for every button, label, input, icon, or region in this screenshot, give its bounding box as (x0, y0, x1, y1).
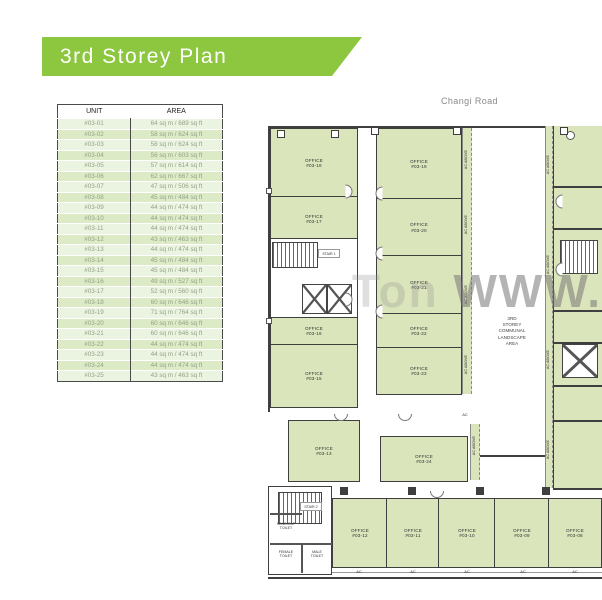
door-arc (430, 491, 444, 498)
unit-cell: #03-17 (58, 287, 131, 298)
room-03-08: OFFICE #03-08 (548, 498, 602, 568)
room-03-19: OFFICE #03-19 (376, 128, 462, 200)
table-row: #03-1752 sq m / 560 sq ft (58, 287, 223, 298)
area-cell: 43 sq m / 463 sq ft (131, 371, 223, 382)
lift-shaft (302, 284, 327, 314)
unit-cell: #03-22 (58, 339, 131, 350)
wall-r1 (553, 186, 602, 188)
area-cell: 60 sq m / 646 sq ft (131, 297, 223, 308)
area-cell: 64 sq m / 689 sq ft (131, 119, 223, 130)
area-cell: 43 sq m / 463 sq ft (131, 234, 223, 245)
corridor-column (408, 487, 416, 495)
area-cell: 60 sq m / 646 sq ft (131, 329, 223, 340)
unit-cell: #03-05 (58, 161, 131, 172)
unit-cell: #03-06 (58, 171, 131, 182)
unit-cell: #03-08 (58, 192, 131, 203)
area-cell: 44 sq m / 474 sq ft (131, 350, 223, 361)
area-cell: 52 sq m / 560 sq ft (131, 287, 223, 298)
communal-area-label: 3RD STOREY COMMUNAL LANDSCAPE AREA (478, 316, 546, 347)
unit-cell: #03-14 (58, 255, 131, 266)
table-row: #03-1971 sq m / 764 sq ft (58, 308, 223, 319)
area-cell: 45 sq m / 484 sq ft (131, 266, 223, 277)
ac-above-label: AC ABOVE (546, 350, 552, 369)
wall-ledge (266, 188, 272, 194)
table-row: #03-1545 sq m / 484 sq ft (58, 266, 223, 277)
room-unit-label: #03-11 (405, 533, 420, 538)
unit-cell: #03-18 (58, 297, 131, 308)
lift-shaft-right (562, 344, 598, 378)
area-cell: 45 sq m / 484 sq ft (131, 255, 223, 266)
room-unit-label: #03-16 (306, 331, 322, 336)
unit-cell: #03-01 (58, 119, 131, 130)
door-arc (556, 263, 563, 277)
table-row: #03-2344 sq m / 474 sq ft (58, 350, 223, 361)
unit-cell: #03-02 (58, 129, 131, 140)
elevator-x-icon (303, 285, 326, 313)
door-arc (376, 187, 383, 201)
table-row: #03-1243 sq m / 463 sq ft (58, 234, 223, 245)
room-unit-label: #03-19 (411, 164, 427, 169)
corridor-column (476, 487, 484, 495)
unit-cell: #03-07 (58, 182, 131, 193)
door-arc (556, 195, 563, 209)
table-row: #03-1144 sq m / 474 sq ft (58, 224, 223, 235)
column-square (371, 127, 379, 135)
table-header-unit: UNIT (58, 105, 131, 119)
corridor-column (340, 487, 348, 495)
unit-cell: #03-10 (58, 213, 131, 224)
unit-cell: #03-12 (58, 234, 131, 245)
column-square (277, 130, 285, 138)
unit-cell: #03-04 (58, 150, 131, 161)
table-row: #03-0358 sq m / 624 sq ft (58, 140, 223, 151)
table-row: #03-2543 sq m / 463 sq ft (58, 371, 223, 382)
room-03-15: OFFICE #03-15 (270, 344, 358, 408)
column-square (560, 127, 568, 135)
table-row: #03-2444 sq m / 474 sq ft (58, 360, 223, 371)
ac-above-label: AC ABOVE (464, 150, 470, 169)
right-units-block (553, 126, 602, 490)
door-arc (376, 305, 383, 319)
table-header-area: AREA (131, 105, 223, 119)
room-unit-label: #03-09 (514, 533, 530, 538)
room-03-21: OFFICE #03-21 (376, 255, 462, 315)
corridor-column (542, 487, 550, 495)
elevator-x-icon (563, 345, 597, 377)
room-03-13: OFFICE #03-13 (288, 420, 360, 482)
ac-label: AC (406, 569, 420, 574)
unit-cell: #03-09 (58, 203, 131, 214)
room-unit-label: #03-21 (411, 285, 427, 290)
room-03-23: OFFICE #03-23 (376, 347, 462, 395)
ac-label: AC (458, 412, 472, 417)
unit-cell: #03-16 (58, 276, 131, 287)
unit-cell: #03-24 (58, 360, 131, 371)
unit-cell: #03-21 (58, 329, 131, 340)
room-03-16: OFFICE #03-16 (270, 316, 358, 346)
area-cell: 44 sq m / 474 sq ft (131, 339, 223, 350)
wall-r5 (553, 385, 602, 387)
room-unit-label: #03-22 (411, 331, 427, 336)
area-cell: 58 sq m / 624 sq ft (131, 140, 223, 151)
area-cell: 47 sq m / 506 sq ft (131, 182, 223, 193)
room-unit-label: #03-24 (416, 459, 432, 464)
table-row: #03-0747 sq m / 506 sq ft (58, 182, 223, 193)
unit-cell: #03-13 (58, 245, 131, 256)
table-row: #03-2060 sq m / 646 sq ft (58, 318, 223, 329)
unit-area-table: UNIT AREA #03-0164 sq m / 689 sq ft #03-… (57, 104, 223, 382)
area-cell: 71 sq m / 764 sq ft (131, 308, 223, 319)
column-square (453, 127, 461, 135)
wall-ledge (266, 318, 272, 324)
wall-r7 (553, 488, 602, 490)
stair-1 (272, 242, 318, 268)
area-cell: 56 sq m / 603 sq ft (131, 150, 223, 161)
unit-cell: #03-20 (58, 318, 131, 329)
room-03-22: OFFICE #03-22 (376, 313, 462, 349)
area-cell: 60 sq m / 646 sq ft (131, 318, 223, 329)
area-cell: 45 sq m / 484 sq ft (131, 192, 223, 203)
table-row: #03-2244 sq m / 474 sq ft (58, 339, 223, 350)
door-arc (398, 414, 412, 421)
area-cell: 44 sq m / 474 sq ft (131, 360, 223, 371)
page-title: 3rd Storey Plan (60, 45, 227, 69)
room-unit-label: #03-10 (459, 533, 475, 538)
unit-cell: #03-25 (58, 371, 131, 382)
ac-above-label: AC ABOVE (464, 355, 470, 374)
wall-bottom (268, 577, 602, 579)
ac-above-label: AC ABOVE (464, 285, 470, 304)
room-unit-label: #03-12 (352, 533, 368, 538)
page: 3rd Storey Plan UNIT AREA #03-0164 sq m … (0, 0, 602, 600)
room-unit-label: #03-13 (316, 451, 332, 456)
table-row: #03-0164 sq m / 689 sq ft (58, 119, 223, 130)
changi-road-label: Changi Road (441, 96, 498, 106)
unit-cell: #03-23 (58, 350, 131, 361)
table-row: #03-1860 sq m / 646 sq ft (58, 297, 223, 308)
room-03-20: OFFICE #03-20 (376, 198, 462, 257)
toilet-male-label: MALE TOILET (303, 550, 331, 559)
toilet-wall-1 (270, 513, 302, 515)
stair-1-label: STAIR 1 (318, 249, 340, 258)
table-row: #03-1445 sq m / 484 sq ft (58, 255, 223, 266)
wall-r2 (553, 228, 602, 230)
room-unit-label: #03-23 (411, 371, 427, 376)
unit-cell: #03-19 (58, 308, 131, 319)
stair-2-label: STAIR 2 (300, 502, 322, 511)
table-header-row: UNIT AREA (58, 105, 223, 119)
table-row: #03-0944 sq m / 474 sq ft (58, 203, 223, 214)
unit-cell: #03-11 (58, 224, 131, 235)
ac-label: AC (568, 569, 582, 574)
room-03-12: OFFICE #03-12 (332, 498, 388, 568)
area-cell: 44 sq m / 474 sq ft (131, 245, 223, 256)
ac-above-strip (545, 126, 553, 488)
table-row: #03-1044 sq m / 474 sq ft (58, 213, 223, 224)
door-arc (376, 247, 383, 261)
ac-label: AC (516, 569, 530, 574)
wall-r3 (553, 310, 602, 312)
title-banner: 3rd Storey Plan (42, 37, 362, 76)
room-03-24: OFFICE #03-24 (380, 436, 468, 482)
toilet-handicap-label: HANDICAP TOILET (271, 522, 301, 531)
ac-above-label: AC ABOVE (546, 155, 552, 174)
table-row: #03-1649 sq m / 527 sq ft (58, 276, 223, 287)
unit-cell: #03-15 (58, 266, 131, 277)
room-unit-label: #03-08 (567, 533, 583, 538)
ac-above-label: AC ABOVE (546, 440, 552, 459)
room-03-17: OFFICE #03-17 (270, 196, 358, 242)
area-cell: 44 sq m / 474 sq ft (131, 213, 223, 224)
room-03-09: OFFICE #03-09 (494, 498, 550, 568)
area-cell: 62 sq m / 667 sq ft (131, 171, 223, 182)
wall-communal-bottom (470, 455, 553, 457)
area-cell: 57 sq m / 614 sq ft (131, 161, 223, 172)
stair-right (560, 240, 598, 274)
table-row: #03-0662 sq m / 667 sq ft (58, 171, 223, 182)
table-row: #03-0258 sq m / 624 sq ft (58, 129, 223, 140)
ac-above-label: AC ABOVE (472, 436, 478, 455)
room-unit-label: #03-17 (306, 219, 322, 224)
unit-cell: #03-03 (58, 140, 131, 151)
table-row: #03-0456 sq m / 603 sq ft (58, 150, 223, 161)
ac-above-label: AC ABOVE (464, 215, 470, 234)
area-cell: 44 sq m / 474 sq ft (131, 203, 223, 214)
ac-above-label: AC ABOVE (546, 255, 552, 274)
room-03-10: OFFICE #03-10 (438, 498, 496, 568)
table-row: #03-0557 sq m / 614 sq ft (58, 161, 223, 172)
toilet-female-label: FEMALE TOILET (271, 550, 301, 559)
room-03-11: OFFICE #03-11 (386, 498, 440, 568)
room-unit-label: #03-15 (306, 376, 322, 381)
ac-label: AC (460, 569, 474, 574)
table-row: #03-2160 sq m / 646 sq ft (58, 329, 223, 340)
room-unit-label: #03-20 (411, 228, 427, 233)
table-row: #03-1344 sq m / 474 sq ft (58, 245, 223, 256)
room-unit-label: #03-18 (306, 163, 322, 168)
area-cell: 58 sq m / 624 sq ft (131, 129, 223, 140)
column-square (331, 130, 339, 138)
ac-label: AC (352, 569, 366, 574)
area-cell: 44 sq m / 474 sq ft (131, 224, 223, 235)
table-row: #03-0845 sq m / 484 sq ft (58, 192, 223, 203)
wall-r6 (553, 420, 602, 422)
area-cell: 49 sq m / 527 sq ft (131, 276, 223, 287)
